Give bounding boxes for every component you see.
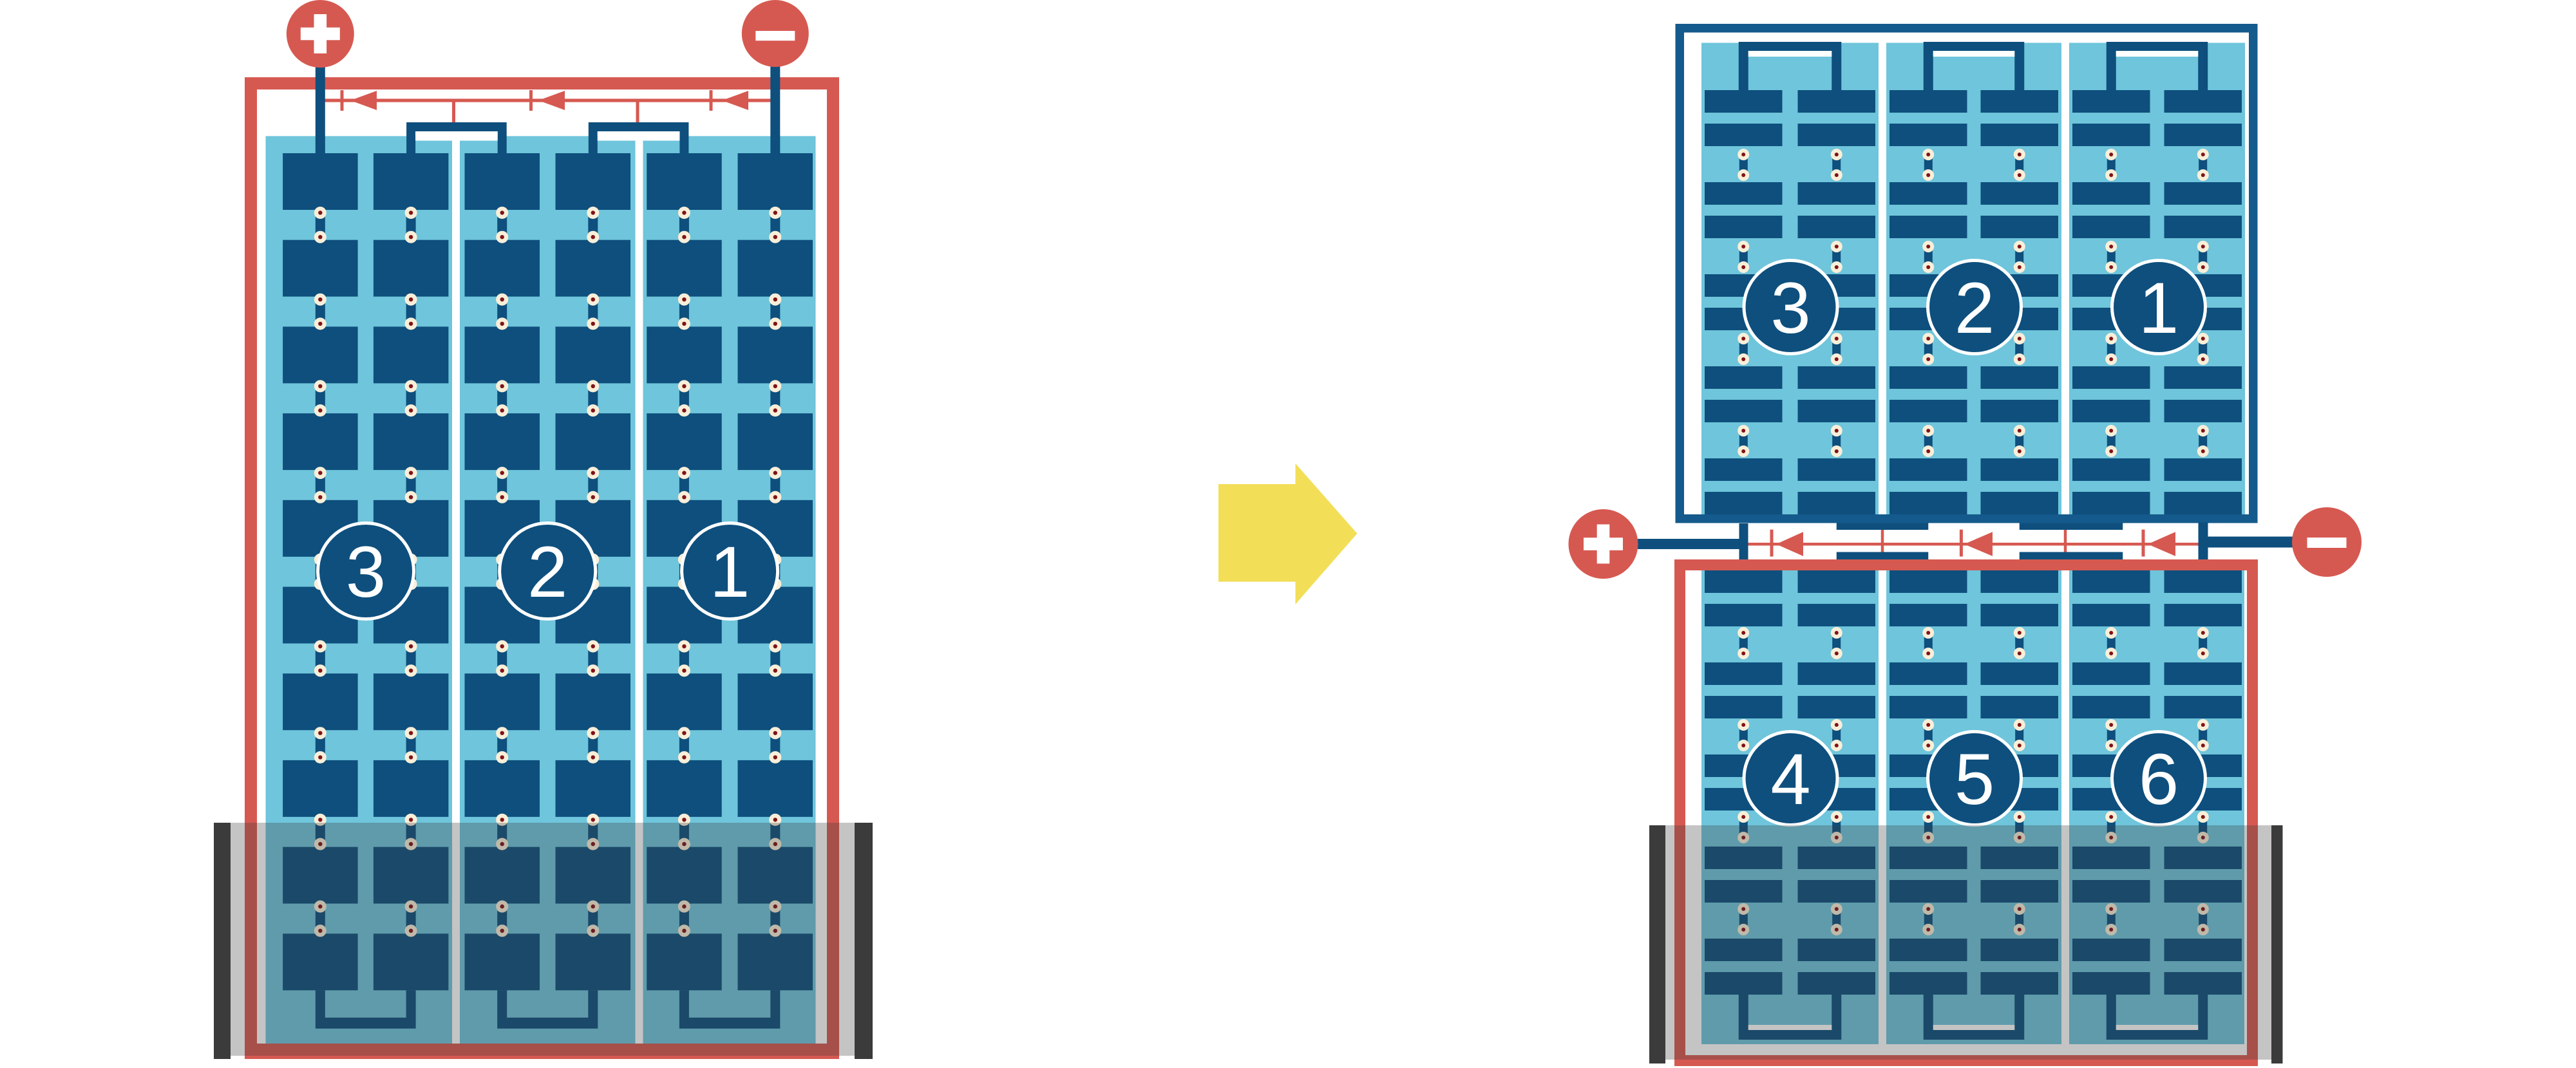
svg-text:6: 6 [2139, 739, 2179, 820]
svg-text:2: 2 [1955, 268, 1994, 348]
svg-text:1: 1 [710, 532, 750, 612]
svg-text:2: 2 [527, 532, 567, 612]
svg-text:3: 3 [1770, 268, 1810, 348]
svg-text:5: 5 [1955, 739, 1994, 820]
svg-text:4: 4 [1770, 739, 1810, 820]
svg-text:1: 1 [2139, 268, 2179, 348]
svg-text:3: 3 [346, 532, 386, 612]
